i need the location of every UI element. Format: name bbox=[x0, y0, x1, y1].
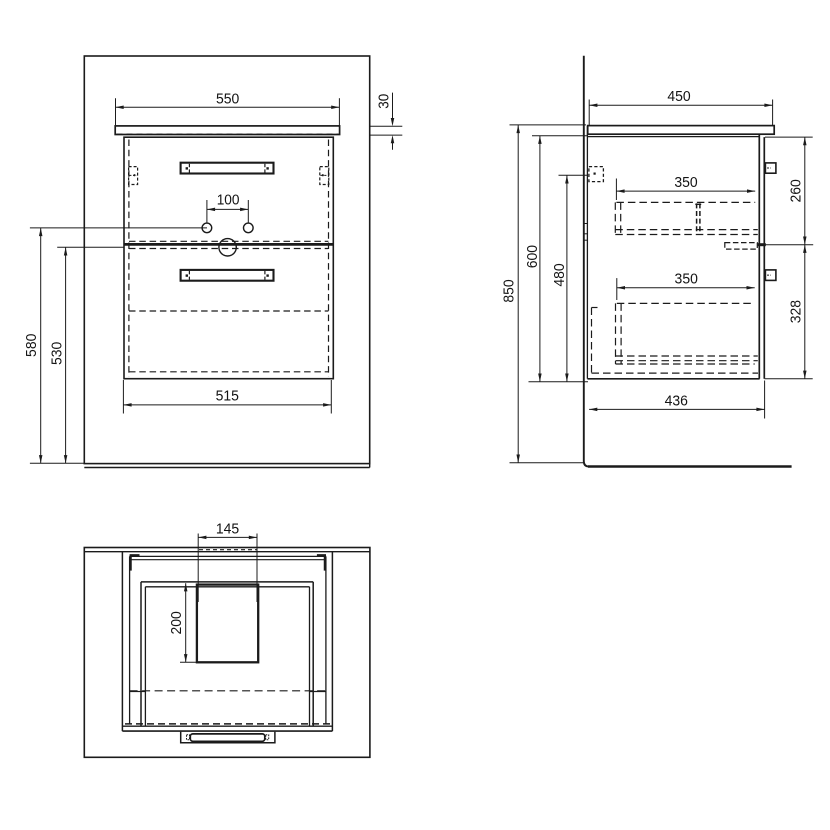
svg-text:260: 260 bbox=[787, 179, 804, 202]
svg-text:100: 100 bbox=[217, 192, 240, 209]
svg-text:200: 200 bbox=[168, 611, 185, 634]
svg-text:480: 480 bbox=[551, 263, 568, 286]
svg-text:30: 30 bbox=[376, 94, 393, 109]
svg-text:850: 850 bbox=[500, 279, 517, 302]
svg-text:350: 350 bbox=[675, 271, 698, 288]
svg-text:145: 145 bbox=[216, 520, 239, 537]
svg-text:550: 550 bbox=[216, 90, 239, 107]
svg-text:328: 328 bbox=[788, 300, 805, 323]
svg-text:436: 436 bbox=[665, 392, 688, 409]
svg-text:450: 450 bbox=[667, 88, 690, 105]
svg-text:530: 530 bbox=[49, 342, 66, 365]
svg-text:350: 350 bbox=[674, 174, 697, 191]
svg-text:580: 580 bbox=[23, 334, 40, 357]
svg-text:600: 600 bbox=[524, 245, 541, 268]
svg-text:515: 515 bbox=[216, 388, 239, 405]
